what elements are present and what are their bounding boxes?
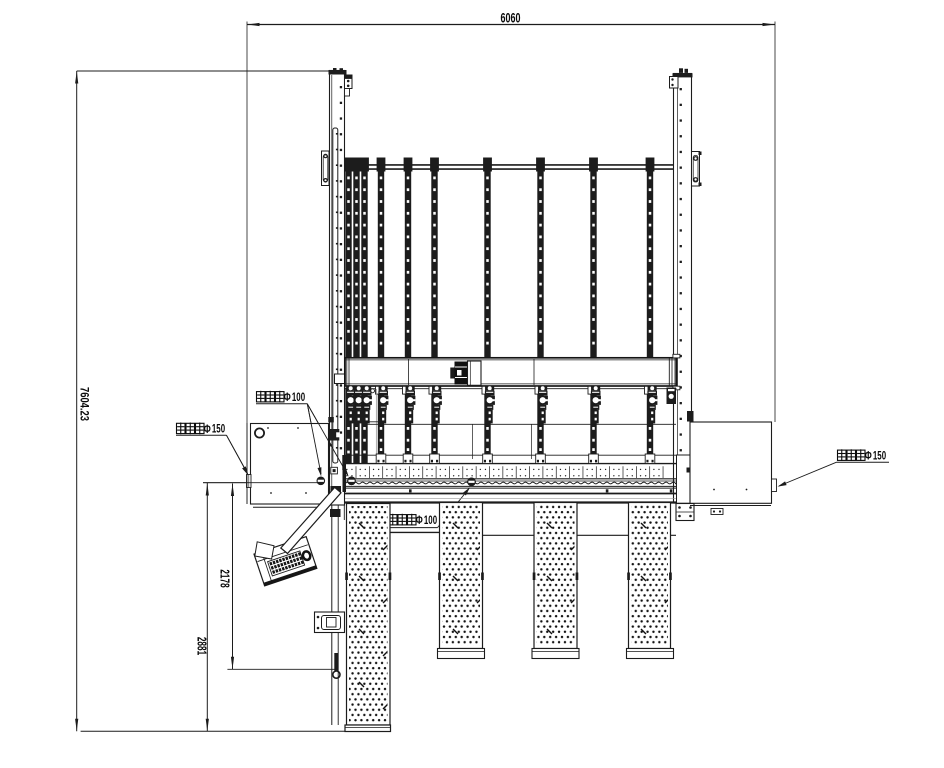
svg-text:Φ: Φ <box>284 392 291 405</box>
svg-text:100: 100 <box>424 515 437 528</box>
svg-text:150: 150 <box>212 423 225 436</box>
svg-text:150: 150 <box>873 450 886 463</box>
svg-text:2178: 2178 <box>217 569 231 587</box>
svg-text:6060: 6060 <box>501 12 521 26</box>
svg-text:100: 100 <box>292 392 305 405</box>
svg-text:2881: 2881 <box>194 637 208 655</box>
svg-text:7604.23: 7604.23 <box>77 387 90 421</box>
svg-text:Φ: Φ <box>865 451 872 464</box>
svg-text:Φ: Φ <box>204 424 211 437</box>
svg-text:Φ: Φ <box>416 515 423 528</box>
